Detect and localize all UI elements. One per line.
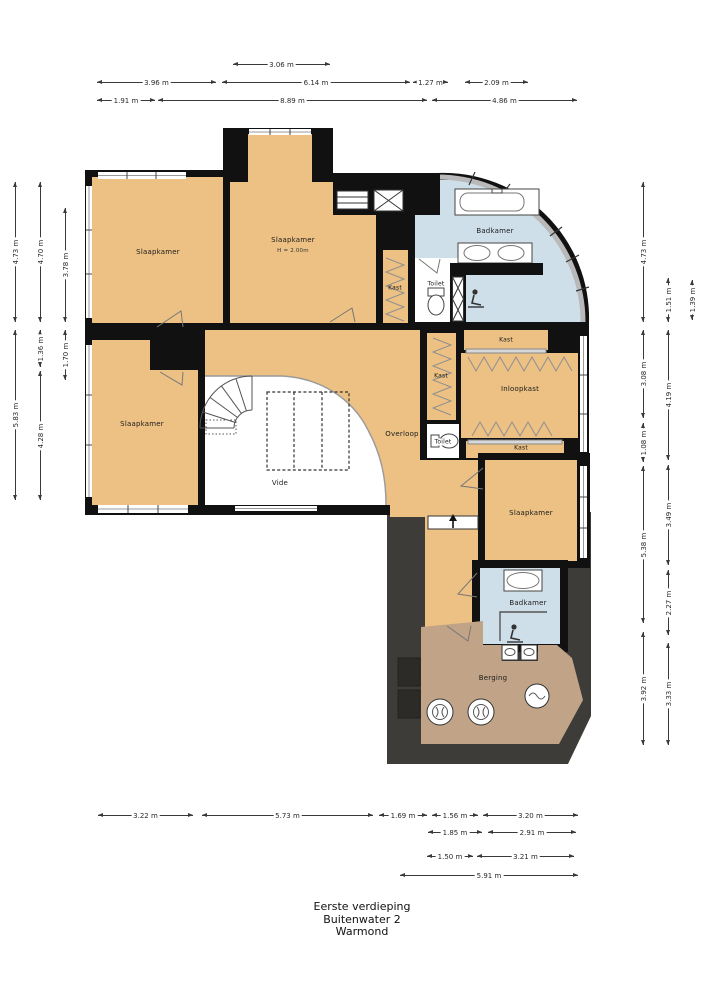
dim-bottom: 1.85 m	[428, 832, 482, 833]
room-label-badkamer-n: Badkamer	[476, 227, 513, 235]
dim-right: 3.49 m	[668, 465, 669, 565]
room-label-slaapkamer-n: Slaapkamer	[271, 236, 315, 244]
dim-top: 3.06 m	[233, 64, 330, 65]
bathtub-icon-south	[504, 570, 542, 591]
toilet-icon	[428, 288, 444, 315]
dim-right: 4.19 m	[668, 330, 669, 460]
dim-top: 8.89 m	[158, 100, 427, 101]
dim-left: 3.78 m	[65, 208, 66, 322]
room-label-slaapkamer-nw: Slaapkamer	[136, 248, 180, 256]
dim-bottom: 5.73 m	[202, 815, 373, 816]
dim-bottom: 1.50 m	[427, 856, 473, 857]
dim-right: 3.08 m	[643, 330, 644, 418]
dim-left: 1.36 m	[40, 330, 41, 367]
dim-bottom: 1.56 m	[432, 815, 478, 816]
dim-right: 1.39 m	[692, 280, 693, 320]
dim-right: 4.73 m	[643, 182, 644, 322]
room-label-slaapkamer-n-height: H = 2.00m	[277, 248, 309, 254]
dim-left: 1.70 m	[65, 330, 66, 380]
dim-top: 6.14 m	[222, 82, 410, 83]
room-label-kast-n: Kast	[388, 285, 402, 292]
room-label-slaapkamer-se: Slaapkamer	[509, 509, 553, 517]
dim-right: 1.08 m	[643, 423, 644, 462]
room-label-slaapkamer-sw: Slaapkamer	[120, 420, 164, 428]
floorplan-page: Slaapkamer Slaapkamer H = 2.00m Badkamer…	[0, 0, 707, 1000]
dim-top: 1.27 m	[413, 82, 448, 83]
dim-right: 3.92 m	[643, 632, 644, 745]
room-label-kast-w: Kast	[434, 373, 448, 380]
dim-top: 4.86 m	[432, 100, 577, 101]
room-label-kast-e-top: Kast	[499, 337, 513, 344]
floorplan-drawing	[0, 0, 707, 1000]
bathtub-icon	[455, 189, 539, 215]
boiler-icon	[525, 684, 549, 708]
dim-top: 1.91 m	[97, 100, 155, 101]
double-sink-icon	[458, 243, 532, 263]
dim-bottom: 3.21 m	[477, 856, 574, 857]
dim-right: 1.51 m	[668, 278, 669, 322]
room-label-overloop: Overloop	[385, 430, 418, 438]
dim-left: 4.70 m	[40, 182, 41, 322]
room-label-toilet-s: Toilet	[435, 439, 452, 446]
room-label-kast-e-bottom: Kast	[514, 445, 528, 452]
dim-left: 5.83 m	[15, 330, 16, 500]
dim-bottom: 3.22 m	[98, 815, 193, 816]
plan-title-floor: Eerste verdieping	[262, 901, 462, 914]
dim-right: 2.27 m	[668, 570, 669, 635]
plan-title: Eerste verdieping Buitenwater 2 Warmond	[262, 901, 462, 939]
dim-right: 5.38 m	[643, 466, 644, 623]
dim-bottom: 5.91 m	[400, 875, 578, 876]
dim-bottom: 1.69 m	[379, 815, 427, 816]
room-label-berging: Berging	[479, 674, 508, 682]
room-label-toilet-n: Toilet	[428, 281, 445, 288]
dim-bottom: 3.20 m	[483, 815, 578, 816]
dim-left: 4.28 m	[40, 371, 41, 500]
dim-bottom: 2.91 m	[488, 832, 576, 833]
dim-top: 3.96 m	[97, 82, 216, 83]
room-label-inloopkast: Inloopkast	[501, 385, 539, 393]
dim-right: 3.33 m	[668, 643, 669, 745]
stairs-direction-arrow-icon	[428, 514, 478, 529]
room-label-badkamer-s: Badkamer	[509, 599, 546, 607]
room-label-vide: Vide	[272, 479, 288, 487]
shaft	[333, 173, 440, 215]
plan-title-city: Warmond	[262, 926, 462, 939]
dim-left: 4.73 m	[15, 182, 16, 322]
dim-top: 2.09 m	[465, 82, 528, 83]
